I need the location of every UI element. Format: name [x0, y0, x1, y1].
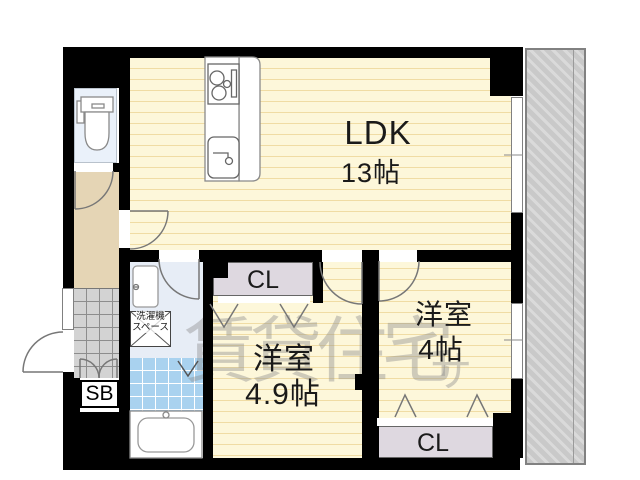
- bedroom2-label: 洋室: [389, 293, 499, 333]
- closet1-hanger-pipe-icon: [210, 304, 308, 327]
- bathroom-folding-door-icon: [178, 361, 198, 376]
- bedroom2-size-label: 4帖: [386, 328, 496, 368]
- laundry-line2: スペース: [132, 322, 169, 333]
- washbasin-icon: [133, 266, 158, 307]
- toilet-icon: [77, 97, 113, 150]
- hall-ldk-door-swing: [130, 211, 168, 249]
- bathtub-icon: [130, 411, 202, 458]
- shoebox-double-door-swing: [80, 359, 117, 378]
- entrance-door-swing: [23, 332, 63, 372]
- bedroom1-size-label: 4.9帖: [228, 369, 338, 413]
- ldk-size-label: 13帖: [316, 151, 426, 190]
- laundry-space-label: 洗濯機 スペース: [130, 311, 171, 333]
- ldk-label: LDK: [323, 114, 433, 152]
- closet1-label: CL: [213, 266, 313, 295]
- floor-plan: 賃貸住宅 サ SB: [0, 0, 640, 480]
- washroom-door-swing: [159, 259, 199, 299]
- toilet-door-swing: [75, 171, 113, 209]
- closet2-hanger-pipe-icon: [395, 395, 488, 417]
- kitchen-unit-icon: [205, 57, 260, 181]
- window-divider-lines: [504, 155, 523, 340]
- kitchen-sink-icon: [208, 137, 239, 178]
- closet2-label: CL: [373, 429, 493, 458]
- laundry-line1: 洗濯機: [136, 311, 165, 322]
- kitchen-stove-icon: [208, 64, 239, 104]
- bedroom1-door-swing: [320, 262, 362, 304]
